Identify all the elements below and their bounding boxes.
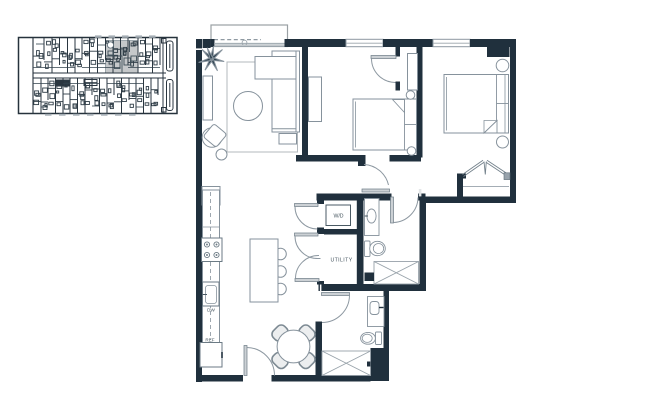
svg-text:W/D: W/D xyxy=(333,214,343,220)
svg-text:REF: REF xyxy=(205,338,214,343)
svg-text:DW: DW xyxy=(207,308,215,313)
svg-text:UTILITY: UTILITY xyxy=(330,258,352,264)
